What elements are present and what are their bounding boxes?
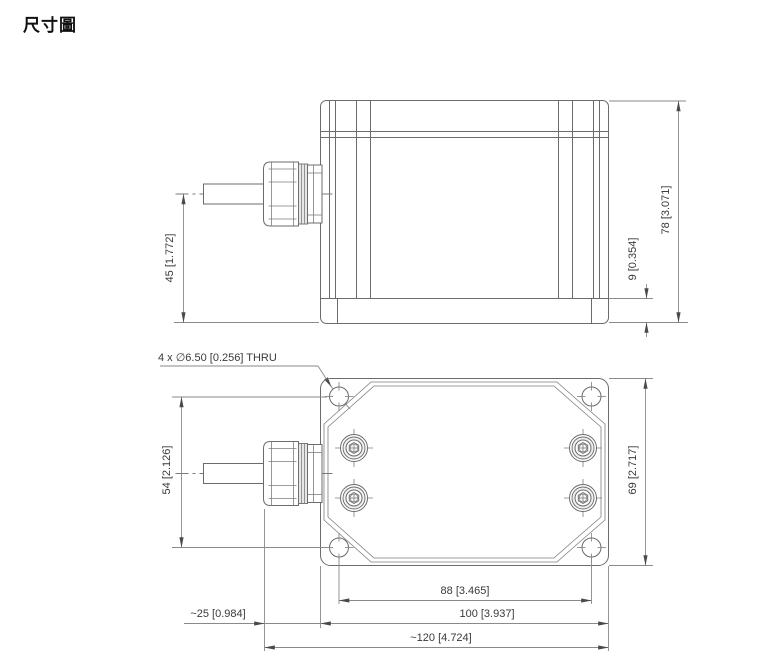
dim-overall-height-label: 78 [3.071] (660, 186, 672, 235)
lid-outline-inner (328, 386, 601, 558)
technical-drawing-canvas: 45 [1.772] 9 [0.354] 78 [3.071] 4 x ∅6.5… (0, 0, 757, 653)
dim-overall-width: ~120 [4.724] (265, 632, 609, 648)
hole-callout-label: 4 x ∅6.50 [0.256] THRU (158, 352, 277, 364)
lid-outline-outer (324, 382, 605, 562)
dim-base-step: 9 [0.354] (609, 238, 688, 337)
dim-base-step-label: 9 [0.354] (627, 238, 639, 281)
dim-overall-height: 78 [3.071] (609, 101, 686, 323)
dim-body-width-label: 100 [3.937] (459, 608, 514, 620)
side-view-corner-ribs (330, 101, 600, 324)
plan-view (176, 379, 609, 566)
dim-body-depth-label: 69 [2.717] (627, 446, 639, 495)
dim-gland-protrusion: ~25 [0.984] (184, 509, 321, 651)
dimension-drawing-page: 尺寸圖 (0, 0, 757, 653)
dim-body-depth: 69 [2.717] (609, 379, 653, 566)
dim-cable-to-base-label: 45 [1.772] (164, 234, 176, 283)
dim-overall-width-label: ~120 [4.724] (410, 632, 471, 644)
dim-hole-pitch-horizontal: 88 [3.465] (339, 558, 592, 604)
hole-callout: 4 x ∅6.50 [0.256] THRU (158, 352, 350, 409)
dim-hole-pitch-horizontal-label: 88 [3.465] (441, 585, 490, 597)
dim-gland-protrusion-label: ~25 [0.984] (190, 608, 245, 620)
side-view (176, 101, 609, 324)
dim-hole-pitch-vertical-label: 54 [2.126] (161, 446, 173, 495)
